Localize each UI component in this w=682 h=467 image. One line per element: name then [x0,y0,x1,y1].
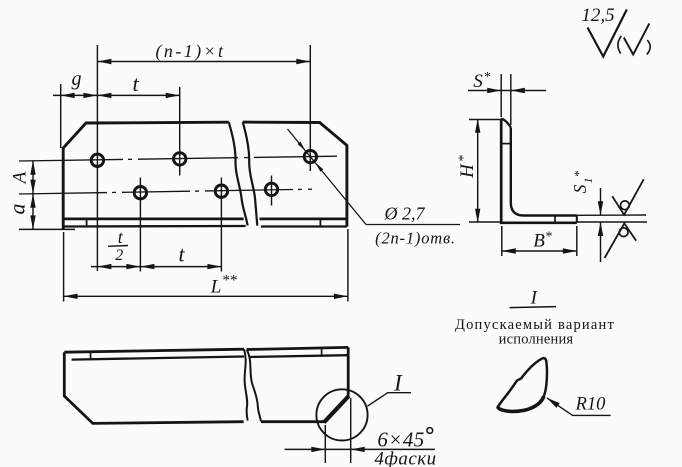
svg-text:a: a [5,204,30,215]
svg-text:A: A [10,171,31,185]
svg-text:Ø 2,7: Ø 2,7 [384,204,426,224]
svg-text:H: H [457,163,478,179]
svg-text:исполнения: исполнения [499,332,574,348]
svg-text:*: * [484,70,491,85]
svg-text:2: 2 [115,247,123,264]
svg-text:**: ** [223,273,238,289]
svg-text:1: 1 [581,178,595,184]
svg-text:S: S [570,184,590,193]
svg-text:L: L [210,277,222,298]
svg-text:4фаски: 4фаски [374,449,436,467]
svg-text:B: B [533,231,545,252]
svg-text:I: I [393,371,403,396]
svg-text:R10: R10 [575,395,607,415]
svg-text:g: g [72,68,82,90]
svg-text:*: * [457,155,472,162]
svg-text:t: t [178,242,185,267]
svg-text:12,5: 12,5 [581,5,614,26]
svg-text:(n-1)×t: (n-1)×t [156,41,226,62]
svg-text:(2n-1)отв.: (2n-1)отв. [375,229,456,248]
svg-text:*: * [571,170,586,177]
svg-text:S: S [473,71,483,92]
svg-text:*: * [546,230,553,245]
svg-text:t: t [132,71,139,96]
